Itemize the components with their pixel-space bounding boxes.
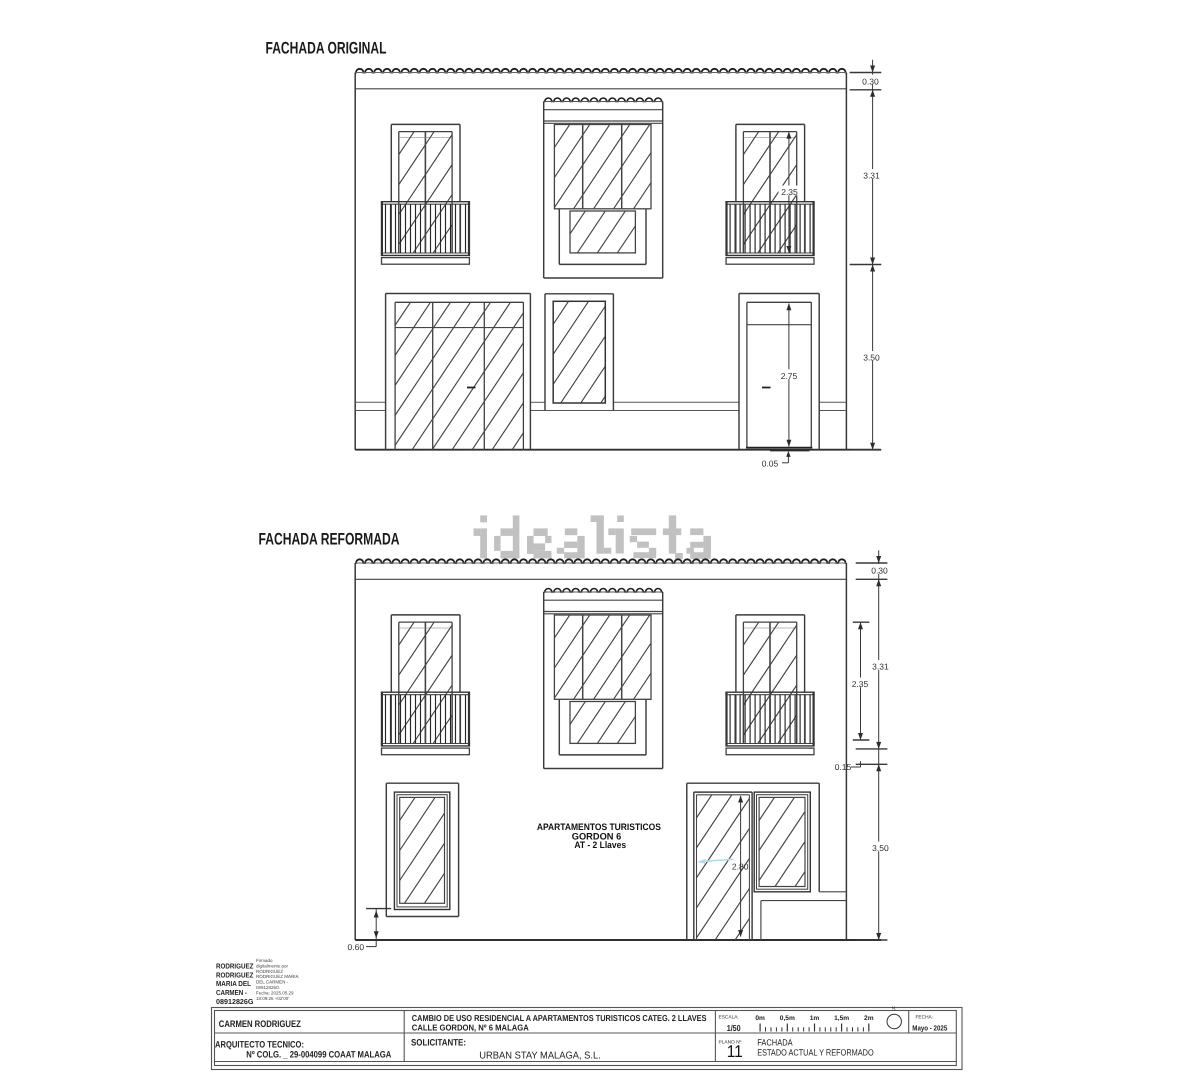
svg-text:ESCALA:: ESCALA: [719, 1014, 739, 1020]
svg-text:URBAN STAY MALAGA, S.L.: URBAN STAY MALAGA, S.L. [479, 1051, 601, 1062]
svg-text:ARQUITECTO TECNICO:: ARQUITECTO TECNICO: [215, 1040, 304, 1050]
svg-text:08912826G: 08912826G [256, 985, 280, 990]
svg-text:0.15: 0.15 [835, 762, 852, 772]
svg-text:CARMEN -: CARMEN - [216, 988, 248, 997]
svg-text:0.30: 0.30 [862, 76, 879, 86]
svg-text:1m: 1m [810, 1015, 820, 1022]
svg-text:0.05: 0.05 [762, 458, 779, 468]
svg-text:3.50: 3.50 [872, 843, 889, 853]
svg-text:2.80: 2.80 [732, 862, 749, 872]
svg-text:0.30: 0.30 [871, 566, 888, 576]
svg-text:RODRIGUEZ: RODRIGUEZ [256, 969, 283, 974]
svg-text:1/50: 1/50 [727, 1023, 741, 1033]
svg-text:SOLICITANTE:: SOLICITANTE: [411, 1037, 466, 1047]
svg-text:FACHADA REFORMADA: FACHADA REFORMADA [259, 529, 400, 548]
svg-text:0.60: 0.60 [348, 942, 365, 952]
svg-text:1,5m: 1,5m [834, 1015, 849, 1022]
svg-text:Fecha: 2025.05.29: Fecha: 2025.05.29 [256, 990, 294, 995]
svg-text:Mayo - 2025: Mayo - 2025 [912, 1024, 947, 1033]
svg-text:FACHADA ORIGINAL: FACHADA ORIGINAL [266, 39, 387, 58]
svg-text:11: 11 [727, 1042, 743, 1061]
svg-text:0m: 0m [755, 1015, 765, 1022]
svg-text:2.75: 2.75 [781, 371, 798, 381]
svg-text:RODRIGUEZ MARIA: RODRIGUEZ MARIA [256, 974, 299, 979]
svg-text:N.: N. [892, 1006, 897, 1011]
svg-text:Firmado: Firmado [256, 958, 273, 963]
svg-text:3.50: 3.50 [863, 353, 880, 363]
svg-text:MARIA DEL: MARIA DEL [216, 979, 252, 988]
svg-text:DEL CARMEN -: DEL CARMEN - [256, 980, 289, 985]
svg-text:CARMEN RODRIGUEZ: CARMEN RODRIGUEZ [219, 1019, 301, 1030]
svg-text:Nº COLG. _ 29-004099 COAAT MA: Nº COLG. _ 29-004099 COAAT MALAGA [246, 1050, 391, 1060]
svg-text:2m: 2m [864, 1015, 874, 1022]
svg-text:FACHADA: FACHADA [757, 1038, 793, 1048]
svg-text:CALLE GORDON, Nº 6 MALAGA: CALLE GORDON, Nº 6 MALAGA [412, 1023, 529, 1033]
svg-text:18:09:26 +02'00': 18:09:26 +02'00' [256, 996, 289, 1001]
svg-text:2.35: 2.35 [852, 679, 869, 689]
svg-text:08912826G: 08912826G [216, 997, 254, 1006]
svg-text:3.31: 3.31 [872, 662, 889, 672]
svg-text:digitalmente por: digitalmente por [256, 963, 289, 968]
svg-text:FECHA:: FECHA: [916, 1014, 934, 1020]
svg-text:AT - 2 Llaves: AT - 2 Llaves [574, 839, 626, 850]
svg-text:2.35: 2.35 [781, 187, 798, 197]
svg-text:CAMBIO DE USO RESIDENCIAL A AP: CAMBIO DE USO RESIDENCIAL A APARTAMENTOS… [412, 1013, 707, 1023]
svg-text:RODRIGUEZ: RODRIGUEZ [216, 961, 254, 970]
svg-text:ESTADO ACTUAL Y REFORMADO: ESTADO ACTUAL Y REFORMADO [757, 1048, 874, 1058]
svg-text:0,5m: 0,5m [780, 1015, 795, 1022]
svg-text:RODRIGUEZ: RODRIGUEZ [216, 970, 254, 979]
svg-text:3.31: 3.31 [863, 171, 880, 181]
